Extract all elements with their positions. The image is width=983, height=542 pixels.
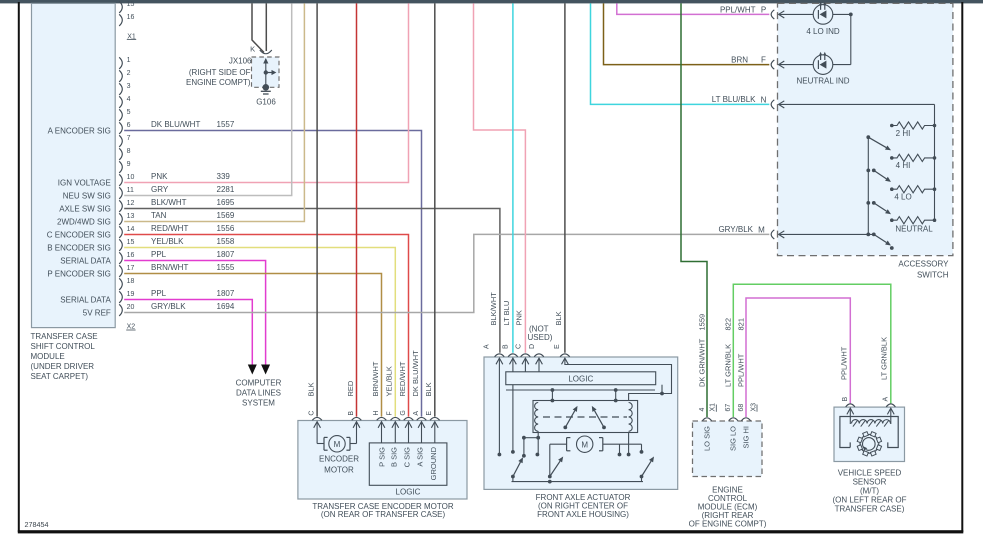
svg-text:20: 20 (127, 304, 135, 311)
svg-text:BLK: BLK (554, 311, 563, 325)
svg-text:TAN: TAN (151, 211, 167, 220)
svg-text:ENCODER: ENCODER (319, 455, 359, 464)
svg-text:12: 12 (127, 200, 135, 207)
svg-text:C: C (308, 411, 315, 416)
svg-text:4: 4 (699, 408, 706, 412)
svg-text:1807: 1807 (217, 250, 235, 259)
svg-text:5: 5 (127, 109, 131, 116)
svg-text:TRANSFER CASE: TRANSFER CASE (31, 332, 98, 341)
svg-text:C SIG: C SIG (402, 447, 411, 468)
svg-text:BLK: BLK (424, 382, 433, 396)
svg-text:1555: 1555 (217, 263, 235, 272)
svg-text:LT BLU/BLK: LT BLU/BLK (712, 95, 756, 104)
svg-text:1556: 1556 (217, 224, 235, 233)
svg-text:A: A (484, 344, 491, 349)
svg-text:COMPUTER: COMPUTER (236, 379, 282, 388)
svg-text:DK BLU/WHT: DK BLU/WHT (411, 350, 420, 397)
svg-text:K: K (250, 45, 255, 54)
svg-text:JX106: JX106 (229, 57, 252, 66)
svg-text:LO SIG: LO SIG (702, 426, 711, 451)
svg-text:15: 15 (127, 239, 135, 246)
svg-text:B: B (502, 344, 509, 349)
svg-text:4: 4 (127, 96, 131, 103)
svg-text:9: 9 (127, 161, 131, 168)
svg-text:4 HI: 4 HI (896, 161, 911, 170)
svg-text:3: 3 (127, 83, 131, 90)
svg-text:E: E (554, 344, 561, 349)
svg-text:2281: 2281 (217, 185, 235, 194)
svg-text:NEUTRAL IND: NEUTRAL IND (796, 77, 849, 86)
svg-text:P ENCODER SIG: P ENCODER SIG (47, 269, 110, 278)
svg-text:278454: 278454 (25, 520, 49, 529)
svg-text:FRONT AXLE HOUSING): FRONT AXLE HOUSING) (537, 510, 629, 519)
svg-text:SERIAL DATA: SERIAL DATA (60, 256, 111, 265)
svg-text:BRN: BRN (731, 55, 748, 64)
svg-text:C: C (516, 344, 523, 349)
svg-text:BLK: BLK (306, 382, 315, 396)
svg-text:MODULE: MODULE (31, 352, 65, 361)
svg-text:C ENCODER SIG: C ENCODER SIG (47, 230, 111, 239)
svg-text:X1: X1 (710, 403, 717, 412)
svg-text:P SIG: P SIG (377, 447, 386, 467)
svg-text:PNK: PNK (151, 172, 168, 181)
svg-text:2 HI: 2 HI (896, 129, 911, 138)
svg-text:OF ENGINE COMPT): OF ENGINE COMPT) (689, 520, 767, 529)
svg-text:(ON LEFT REAR OF: (ON LEFT REAR OF (832, 496, 906, 505)
svg-text:DK GRN/WHT: DK GRN/WHT (697, 338, 706, 387)
svg-text:PPL/WHT: PPL/WHT (720, 5, 756, 14)
svg-text:A SIG: A SIG (415, 447, 424, 467)
svg-text:YEL/BLK: YEL/BLK (385, 366, 394, 396)
svg-text:4 LO: 4 LO (894, 193, 911, 202)
svg-text:SYSTEM: SYSTEM (242, 399, 275, 408)
svg-text:16: 16 (127, 252, 135, 259)
svg-text:F: F (761, 56, 766, 65)
svg-text:N: N (761, 95, 767, 104)
svg-text:339: 339 (217, 172, 231, 181)
svg-text:8: 8 (127, 148, 131, 155)
svg-text:BLK/WHT: BLK/WHT (151, 198, 187, 207)
svg-text:H: H (373, 411, 380, 416)
svg-text:5V REF: 5V REF (83, 308, 111, 317)
svg-text:SWITCH: SWITCH (917, 271, 949, 280)
svg-text:SENSOR: SENSOR (853, 478, 887, 487)
svg-text:M: M (334, 440, 341, 449)
svg-text:DATA LINES: DATA LINES (236, 389, 281, 398)
svg-text:A ENCODER SIG: A ENCODER SIG (48, 126, 111, 135)
svg-text:X2: X2 (127, 324, 136, 331)
svg-text:AXLE SW SIG: AXLE SW SIG (59, 204, 111, 213)
svg-text:6: 6 (127, 122, 131, 129)
svg-text:1: 1 (127, 57, 131, 64)
svg-text:G106: G106 (256, 98, 276, 107)
svg-text:BRN/WHT: BRN/WHT (151, 263, 188, 272)
svg-text:PPL/WHT: PPL/WHT (839, 346, 848, 380)
svg-text:RED/WHT: RED/WHT (151, 224, 188, 233)
svg-text:TRANSFER CASE): TRANSFER CASE) (835, 505, 905, 514)
svg-text:A: A (882, 397, 889, 402)
svg-text:(RIGHT SIDE OF: (RIGHT SIDE OF (189, 68, 251, 77)
svg-text:GRY: GRY (151, 185, 169, 194)
svg-text:7: 7 (127, 135, 131, 142)
svg-text:B: B (348, 411, 355, 416)
svg-text:USED): USED) (528, 333, 553, 342)
svg-text:2WD/4WD SIG: 2WD/4WD SIG (57, 217, 111, 226)
svg-text:1559: 1559 (697, 314, 706, 331)
svg-text:1695: 1695 (217, 198, 235, 207)
svg-text:IGN VOLTAGE: IGN VOLTAGE (58, 178, 111, 187)
svg-text:LOGIC: LOGIC (568, 375, 593, 384)
svg-text:10: 10 (127, 174, 135, 181)
svg-text:BRN/WHT: BRN/WHT (371, 361, 380, 396)
svg-text:18: 18 (127, 278, 135, 285)
svg-text:X3: X3 (750, 403, 757, 412)
svg-text:4 LO IND: 4 LO IND (806, 27, 840, 36)
svg-text:MOTOR: MOTOR (324, 466, 354, 475)
svg-text:SIG HI: SIG HI (741, 426, 750, 449)
svg-text:GRY/BLK: GRY/BLK (718, 225, 753, 234)
svg-text:F: F (387, 411, 394, 415)
svg-text:A: A (413, 411, 420, 416)
svg-text:SERIAL DATA: SERIAL DATA (60, 295, 111, 304)
svg-text:11: 11 (127, 187, 134, 194)
svg-text:(M/T): (M/T) (860, 487, 879, 496)
svg-text:VEHICLE SPEED: VEHICLE SPEED (838, 469, 902, 478)
svg-text:B SIG: B SIG (390, 447, 399, 467)
svg-text:SEAT CARPET): SEAT CARPET) (31, 372, 89, 381)
svg-text:E: E (426, 411, 433, 416)
svg-text:19: 19 (127, 291, 135, 298)
svg-text:LOGIC: LOGIC (396, 488, 421, 497)
svg-text:D: D (529, 344, 536, 349)
svg-text:1557: 1557 (217, 120, 235, 129)
svg-text:1569: 1569 (217, 211, 235, 220)
svg-text:822: 822 (724, 318, 733, 331)
svg-text:ENGINE COMPT): ENGINE COMPT) (186, 78, 251, 87)
svg-text:B: B (842, 397, 849, 402)
svg-text:BLK/WHT: BLK/WHT (489, 292, 498, 326)
svg-text:RED: RED (346, 380, 355, 396)
svg-text:821: 821 (736, 318, 745, 331)
svg-text:M: M (758, 225, 765, 234)
svg-text:DK BLU/WHT: DK BLU/WHT (151, 120, 200, 129)
svg-text:1807: 1807 (217, 289, 235, 298)
svg-text:B ENCODER SIG: B ENCODER SIG (47, 243, 111, 252)
svg-text:17: 17 (127, 265, 135, 272)
svg-text:15: 15 (127, 1, 135, 8)
svg-text:NEU SW SIG: NEU SW SIG (63, 191, 111, 200)
svg-text:YEL/BLK: YEL/BLK (151, 237, 184, 246)
svg-text:G: G (400, 410, 407, 415)
svg-text:SIG LO: SIG LO (729, 426, 738, 451)
svg-text:(ON REAR OF TRANSFER CASE): (ON REAR OF TRANSFER CASE) (321, 510, 446, 519)
svg-text:16: 16 (127, 14, 135, 21)
svg-text:LT GRN/BLK: LT GRN/BLK (724, 344, 733, 387)
svg-text:68: 68 (738, 404, 745, 412)
svg-text:GROUND: GROUND (429, 446, 438, 480)
svg-text:PPL: PPL (151, 250, 167, 259)
svg-text:PPL/WHT: PPL/WHT (736, 353, 745, 387)
svg-text:M: M (581, 440, 588, 449)
svg-text:ACCESSORY: ACCESSORY (898, 260, 949, 269)
svg-text:P: P (761, 6, 766, 15)
svg-text:LT BLU: LT BLU (502, 301, 511, 326)
svg-text:PPL: PPL (151, 289, 167, 298)
svg-text:LT GRN/BLK: LT GRN/BLK (879, 337, 888, 380)
svg-text:NEUTRAL: NEUTRAL (895, 224, 933, 233)
svg-text:13: 13 (127, 213, 135, 220)
svg-text:(UNDER DRIVER: (UNDER DRIVER (31, 362, 95, 371)
svg-text:67: 67 (725, 404, 732, 412)
svg-text:SHIFT CONTROL: SHIFT CONTROL (31, 342, 96, 351)
svg-text:2: 2 (127, 70, 131, 77)
svg-text:1694: 1694 (217, 302, 235, 311)
svg-text:PNK: PNK (515, 310, 524, 325)
svg-text:RED/WHT: RED/WHT (398, 361, 407, 396)
svg-text:1558: 1558 (217, 237, 235, 246)
svg-text:14: 14 (127, 226, 135, 233)
svg-text:GRY/BLK: GRY/BLK (151, 302, 186, 311)
